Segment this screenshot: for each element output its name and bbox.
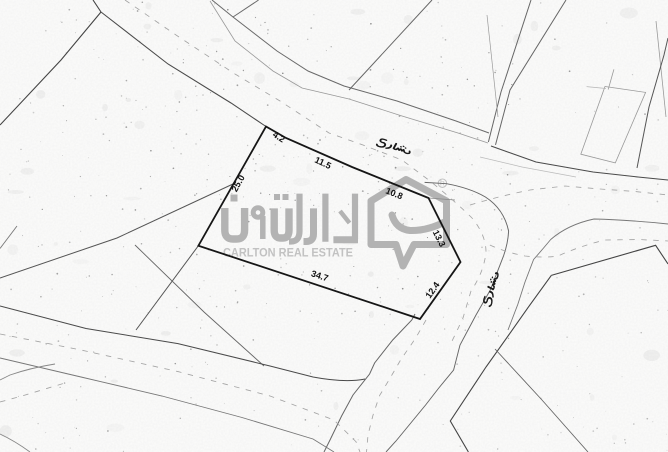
svg-text:CARLTON REAL ESTATE: CARLTON REAL ESTATE bbox=[223, 248, 353, 260]
svg-text:R: R bbox=[440, 181, 445, 188]
